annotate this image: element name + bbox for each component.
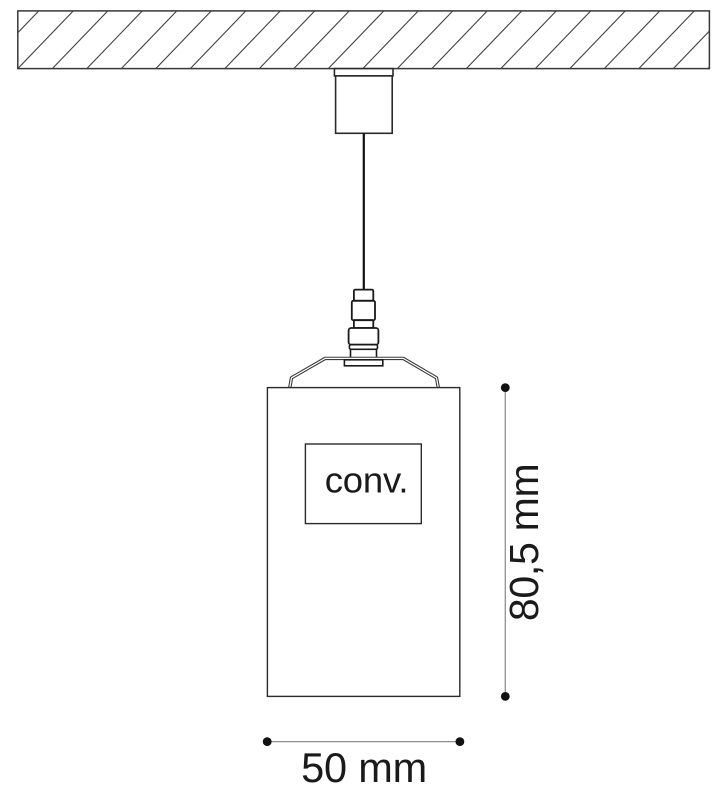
svg-text:50 mm: 50 mm (301, 744, 427, 791)
svg-text:80,5 mm: 80,5 mm (501, 464, 547, 621)
svg-text:conv.: conv. (325, 460, 409, 501)
